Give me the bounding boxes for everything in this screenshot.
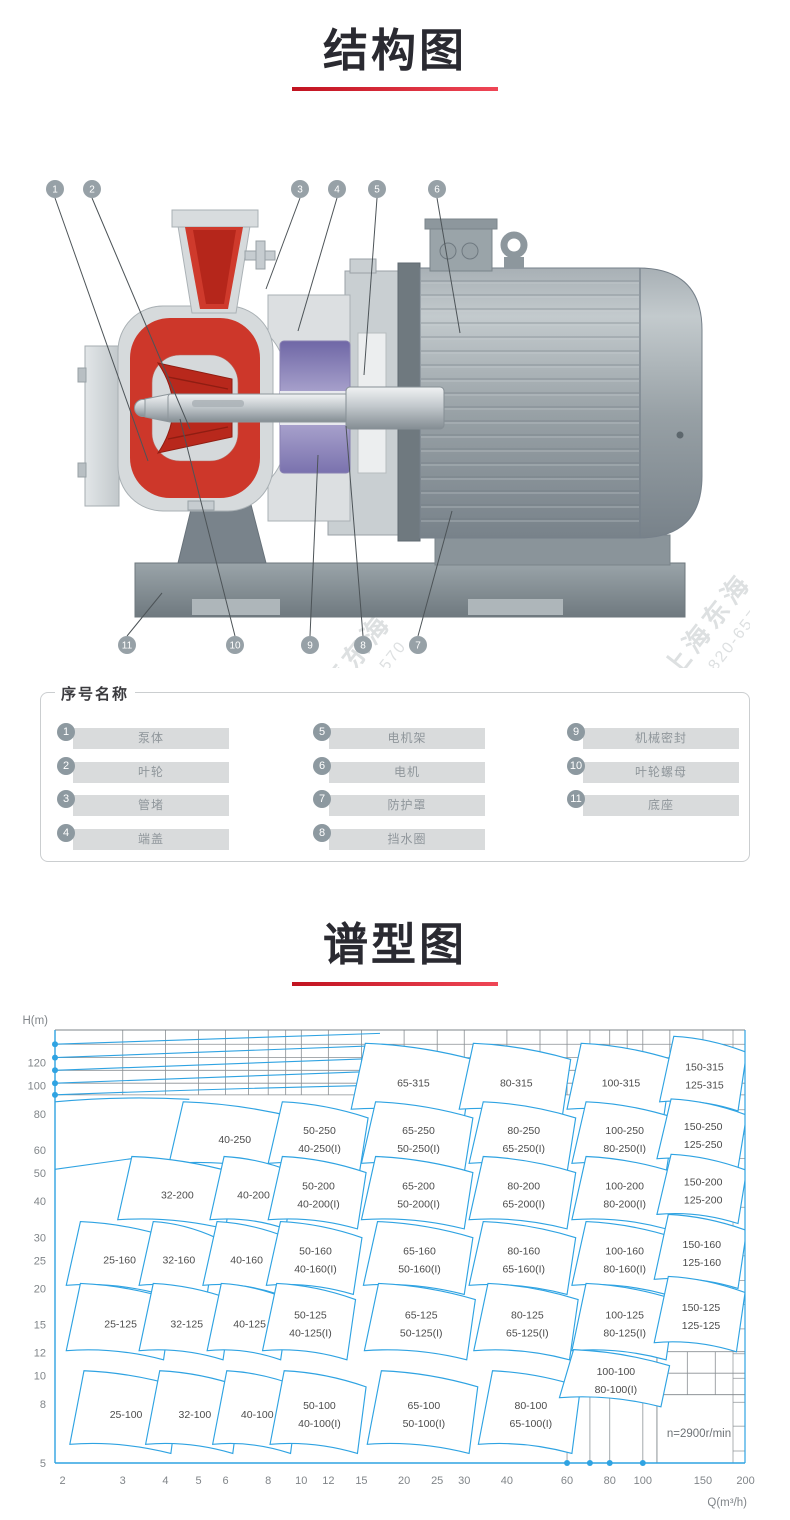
legend-item-label: 底座: [583, 795, 739, 816]
legend-item-label: 管堵: [73, 795, 229, 816]
pump-model-label: 40-250: [218, 1134, 251, 1146]
pump-model-label: 65-100: [408, 1400, 441, 1412]
pump-model-label: 50-200: [302, 1180, 335, 1192]
lifting-eye: [504, 235, 524, 255]
svg-text:12: 12: [34, 1348, 46, 1360]
legend-item-number: 7: [313, 790, 331, 808]
pump-cross-section-drawing: 上海东海 800-820-6570 上海东海 800-820-6570 上海东海…: [40, 163, 750, 668]
svg-text:10: 10: [295, 1475, 307, 1487]
svg-text:15: 15: [34, 1320, 46, 1332]
top-flange: [172, 210, 258, 227]
legend-item-number: 5: [313, 723, 331, 741]
motor-drain-plug: [677, 432, 684, 439]
callout-number: 10: [229, 641, 241, 652]
pump-model-label: 25-125: [104, 1318, 137, 1330]
pump-model-label: 65-250(I): [502, 1143, 545, 1155]
selection-chart-canvas: 65-31580-315100-315150-315125-31540-2505…: [0, 1010, 790, 1520]
pump-model-label: 150-200: [684, 1177, 723, 1189]
pump-model-label: 100-315: [602, 1078, 641, 1090]
svg-text:100: 100: [634, 1475, 652, 1487]
legend-item-label: 机械密封: [583, 728, 739, 749]
pump-model-label: 80-200: [507, 1180, 540, 1192]
svg-text:8: 8: [265, 1475, 271, 1487]
pump-model-label: 32-160: [162, 1255, 195, 1267]
pump-model-label: 125-315: [685, 1079, 724, 1091]
pump-model-label: 40-160: [230, 1255, 263, 1267]
pump-selection-chart: 65-31580-315100-315150-315125-31540-2505…: [0, 1010, 790, 1520]
pump-model-label: 50-200(I): [397, 1198, 440, 1210]
casing-plug-bolt: [256, 241, 265, 269]
pump-model-label: 100-100: [597, 1366, 636, 1378]
svg-text:50: 50: [34, 1168, 46, 1180]
pump-model-label: 65-100(I): [510, 1418, 553, 1430]
page: { "structure_section": { "title": "结构图" …: [0, 0, 790, 1520]
pump-model-label: 65-315: [397, 1078, 430, 1090]
pump-model-label: 125-160: [683, 1257, 722, 1269]
svg-text:5: 5: [195, 1475, 201, 1487]
pump-model-label: 65-200(I): [502, 1198, 545, 1210]
x-axis-title: Q(m³/h): [707, 1497, 747, 1509]
speed-annotation: n=2900r/min: [667, 1428, 731, 1440]
pump-model-label: 125-200: [684, 1195, 723, 1207]
svg-text:20: 20: [34, 1283, 46, 1295]
pump-model-label: 65-160(I): [502, 1264, 545, 1276]
svg-text:30: 30: [458, 1475, 470, 1487]
pump-model-label: 40-160(I): [294, 1264, 337, 1276]
svg-text:80: 80: [604, 1475, 616, 1487]
suction-flange-bolt: [78, 368, 86, 382]
pump-model-label: 50-100: [303, 1400, 336, 1412]
svg-text:25: 25: [34, 1255, 46, 1267]
legend-item-number: 4: [57, 824, 75, 842]
pump-model-label: 125-125: [682, 1320, 721, 1332]
pump-model-label: 80-125: [511, 1309, 544, 1321]
pump-model-label: 65-160: [403, 1246, 436, 1258]
legend-item-label: 挡水圈: [329, 829, 485, 850]
callout-number: 1: [52, 185, 58, 196]
pump-model-label: 150-125: [682, 1302, 721, 1314]
shaft-keyway: [192, 400, 244, 407]
svg-text:20: 20: [398, 1475, 410, 1487]
pump-model-label: 80-100: [514, 1400, 547, 1412]
legend-item-label: 泵体: [73, 728, 229, 749]
callout-number: 9: [307, 641, 313, 652]
pump-model-label: 80-160: [507, 1246, 540, 1258]
callout-number: 7: [415, 641, 421, 652]
svg-text:40: 40: [501, 1475, 513, 1487]
pump-model-label: 50-160: [299, 1246, 332, 1258]
pump-model-region: [654, 1276, 745, 1351]
svg-text:150: 150: [694, 1475, 712, 1487]
pump-model-region: [367, 1371, 477, 1454]
pump-model-label: 50-250: [303, 1125, 336, 1137]
callout-number: 5: [374, 185, 380, 196]
parts-legend: 序号名称 1泵体2叶轮3管堵4端盖5电机架6电机7防护罩8挡水圈9机械密封10叶…: [40, 692, 750, 862]
pump-model-label: 40-250(I): [298, 1143, 341, 1155]
pump-model-label: 65-250: [402, 1125, 435, 1137]
legend-item-label: 防护罩: [329, 795, 485, 816]
pump-model-label: 80-250(I): [603, 1143, 646, 1155]
pump-model-label: 100-125: [605, 1309, 644, 1321]
pump-shaft: [168, 394, 348, 422]
pump-model-label: 150-315: [685, 1061, 724, 1073]
pump-model-region: [469, 1222, 576, 1295]
callout-number: 6: [434, 185, 440, 196]
structure-title: 结构图: [0, 14, 790, 79]
y-axis-title: H(m): [22, 1015, 48, 1027]
pump-model-label: 80-125(I): [603, 1327, 646, 1339]
svg-text:60: 60: [561, 1475, 573, 1487]
baseplate-foot: [468, 599, 563, 615]
structure-title-underline: [292, 87, 498, 91]
callout-number: 8: [360, 641, 366, 652]
legend-item-number: 3: [57, 790, 75, 808]
pump-model-label: 150-250: [684, 1121, 723, 1133]
motor-support: [435, 535, 670, 565]
pump-model-label: 40-125: [233, 1318, 266, 1330]
pump-model-label: 25-100: [110, 1409, 143, 1421]
legend-item-number: 2: [57, 757, 75, 775]
svg-text:120: 120: [28, 1058, 46, 1070]
svg-text:60: 60: [34, 1145, 46, 1157]
callout-number: 11: [122, 641, 133, 652]
svg-text:8: 8: [40, 1399, 46, 1411]
suction-flange-bolt: [78, 463, 86, 477]
legend-item-label: 叶轮螺母: [583, 762, 739, 783]
legend-item-number: 8: [313, 824, 331, 842]
pump-model-region: [270, 1371, 366, 1454]
spectrum-title-underline: [292, 982, 498, 986]
pump-model-label: 65-125: [405, 1309, 438, 1321]
pump-model-label: 50-250(I): [397, 1143, 440, 1155]
pump-model-label: 32-200: [161, 1189, 194, 1201]
x-tick-labels: 234568101215202530406080100150200: [60, 1475, 755, 1487]
terminal-box-lid: [425, 219, 497, 229]
legend-item-number: 9: [567, 723, 585, 741]
pump-model-label: 80-100(I): [595, 1384, 638, 1396]
pump-model-label: 80-250: [507, 1125, 540, 1137]
y-tick-labels: 1201008060504030252015121085: [28, 1058, 46, 1470]
legend-title: 序号名称: [55, 683, 135, 704]
callout-number: 3: [297, 185, 303, 196]
legend-item-number: 1: [57, 723, 75, 741]
legend-item-label: 电机: [329, 762, 485, 783]
baseplate-foot: [192, 599, 280, 615]
legend-item-label: 电机架: [329, 728, 485, 749]
pump-model-label: 100-250: [605, 1125, 644, 1137]
pump-model-label: 40-200: [237, 1189, 270, 1201]
spectrum-title: 谱型图: [0, 908, 790, 973]
pump-model-label: 40-100(I): [298, 1418, 341, 1430]
legend-item-label: 叶轮: [73, 762, 229, 783]
pump-model-label: 65-125(I): [506, 1327, 549, 1339]
pump-model-label: 40-200(I): [297, 1198, 340, 1210]
pump-model-region: [263, 1283, 356, 1359]
svg-text:4: 4: [162, 1475, 168, 1487]
svg-text:100: 100: [28, 1081, 46, 1093]
callout-number: 2: [89, 185, 95, 196]
svg-text:40: 40: [34, 1196, 46, 1208]
pump-model-label: 40-125(I): [289, 1327, 332, 1339]
pump-model-label: 150-160: [683, 1239, 722, 1251]
pump-model-label: 50-125: [294, 1309, 327, 1321]
svg-text:25: 25: [431, 1475, 443, 1487]
shaft-coupling: [346, 387, 444, 429]
terminal-box: [430, 227, 492, 271]
terminal-box-gland: [462, 243, 478, 259]
pump-model-label: 25-160: [103, 1255, 136, 1267]
pump-model-label: 50-160(I): [398, 1264, 441, 1276]
svg-text:5: 5: [40, 1458, 46, 1470]
svg-text:10: 10: [34, 1371, 46, 1383]
svg-text:12: 12: [322, 1475, 334, 1487]
pump-model-region: [474, 1283, 578, 1359]
callout-number: 4: [334, 185, 340, 196]
pump-model-label: 50-100(I): [403, 1418, 446, 1430]
terminal-box-gland: [440, 243, 456, 259]
lifting-eye-base: [504, 257, 524, 268]
shaft-cone: [145, 394, 170, 422]
suction-flange: [85, 346, 119, 506]
pump-model-label: 40-100: [241, 1409, 274, 1421]
svg-text:200: 200: [736, 1475, 754, 1487]
pump-model-label: 32-100: [179, 1409, 212, 1421]
pump-model-region: [364, 1283, 475, 1359]
legend-item-number: 6: [313, 757, 331, 775]
pump-model-label: 100-200: [605, 1180, 644, 1192]
pump-model-label: 80-160(I): [603, 1264, 646, 1276]
svg-text:30: 30: [34, 1232, 46, 1244]
svg-text:3: 3: [120, 1475, 126, 1487]
svg-text:2: 2: [60, 1475, 66, 1487]
legend-item-label: 端盖: [73, 829, 229, 850]
svg-text:80: 80: [34, 1109, 46, 1121]
legend-item-number: 11: [567, 790, 585, 808]
pump-model-label: 100-160: [605, 1246, 644, 1258]
pump-model-label: 32-125: [170, 1318, 203, 1330]
svg-text:6: 6: [222, 1475, 228, 1487]
svg-text:15: 15: [355, 1475, 367, 1487]
pump-model-label: 80-315: [500, 1078, 533, 1090]
pump-model-label: 125-250: [684, 1139, 723, 1151]
pump-model-label: 80-200(I): [603, 1198, 646, 1210]
callout-line: [266, 198, 300, 289]
pump-model-label: 65-200: [402, 1180, 435, 1192]
pump-model-label: 50-125(I): [400, 1327, 443, 1339]
legend-item-number: 10: [567, 757, 585, 775]
pump-structure-figure: 上海东海 800-820-6570 上海东海 800-820-6570 上海东海…: [40, 163, 750, 671]
